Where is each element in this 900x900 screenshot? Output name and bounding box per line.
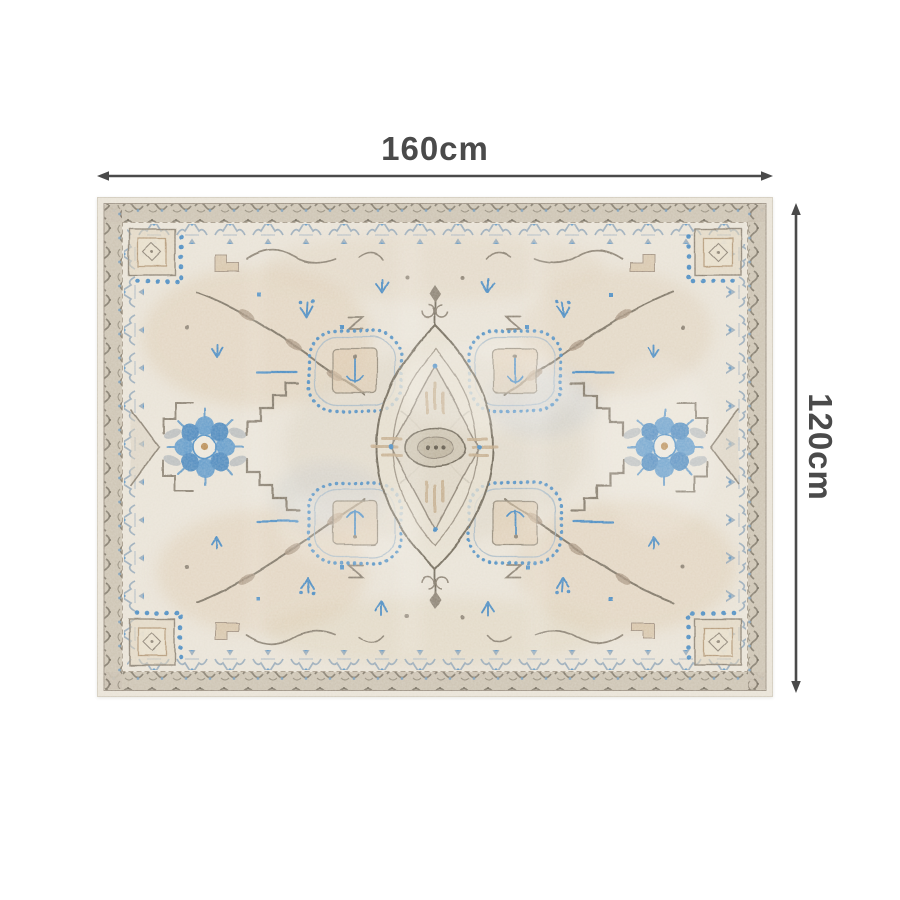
rug-product-photo bbox=[97, 197, 773, 697]
rug-distress-overlay bbox=[97, 197, 773, 697]
height-dimension-label: 120cm bbox=[799, 377, 841, 517]
width-arrow-icon bbox=[97, 169, 773, 183]
product-dimension-image: 160cm 120cm bbox=[0, 0, 900, 900]
width-dimension-label: 160cm bbox=[97, 129, 773, 169]
